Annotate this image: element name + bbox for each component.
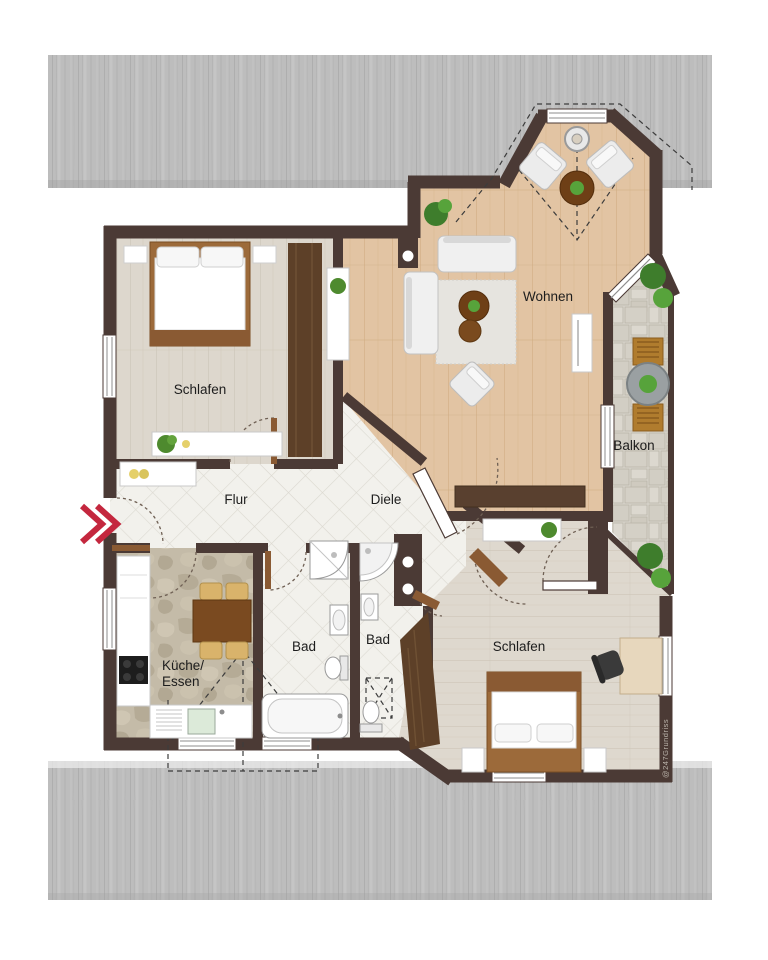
window <box>103 335 116 398</box>
plant-icon <box>640 263 666 289</box>
floorplan-page: Schlafen Wohnen Balkon Flur Diele Küche/… <box>0 0 768 960</box>
lowboard <box>455 486 585 507</box>
plant-icon <box>330 278 346 294</box>
label-bath2: Bad <box>366 632 390 647</box>
shower <box>310 541 348 579</box>
window <box>601 405 614 468</box>
plant-icon <box>570 181 584 195</box>
nightstand <box>124 246 147 263</box>
nightstand <box>462 748 484 772</box>
plant-icon <box>639 375 657 393</box>
wardrobe <box>288 243 322 457</box>
label-kitchen-line2: Essen <box>162 674 200 689</box>
label-bedroom2: Schlafen <box>493 639 546 654</box>
dining-table <box>193 600 251 642</box>
chair <box>200 583 222 600</box>
nightstand <box>253 246 276 263</box>
downlight-icon <box>403 251 414 262</box>
balcony-chair <box>633 338 663 365</box>
balcony-door-leaf <box>543 581 597 590</box>
plant-icon <box>637 543 663 569</box>
watermark-text: @247Grundriss <box>661 719 670 778</box>
balcony-chair <box>633 404 663 431</box>
window <box>178 737 236 750</box>
kitchen-counter-bottom <box>150 705 252 738</box>
window-bay <box>547 109 607 123</box>
chair <box>226 642 248 659</box>
tall-cabinet <box>327 268 349 360</box>
label-balcony: Balkon <box>613 438 654 453</box>
label-vestibule: Diele <box>371 492 402 507</box>
sideboard <box>152 432 282 456</box>
label-living: Wohnen <box>523 289 573 304</box>
label-hall: Flur <box>224 492 248 507</box>
sideboard <box>483 519 561 541</box>
kitchen-door-leaf <box>112 545 150 551</box>
window <box>103 588 116 650</box>
toilet <box>325 656 348 680</box>
label-bedroom1: Schlafen <box>174 382 227 397</box>
bath1-door-leaf <box>265 551 271 589</box>
double-bed <box>150 242 250 346</box>
sink <box>188 709 215 734</box>
double-bed <box>487 672 581 772</box>
dining-table-set <box>193 583 251 659</box>
chair <box>226 583 248 600</box>
window <box>262 737 312 750</box>
floorplan-drawing: Schlafen Wohnen Balkon Flur Diele Küche/… <box>0 0 768 960</box>
hall-furniture <box>120 462 196 486</box>
label-kitchen-line1: Küche/ <box>162 658 204 673</box>
cooktop <box>119 656 148 684</box>
washbasin <box>330 605 348 635</box>
label-bath1: Bad <box>292 639 316 654</box>
plant-icon <box>541 522 557 538</box>
bathtub <box>262 694 348 738</box>
plant-icon <box>468 300 480 312</box>
cabinet <box>572 314 592 372</box>
downlight-icon <box>403 584 414 595</box>
nightstand <box>584 748 606 772</box>
chair <box>200 642 222 659</box>
downlight-icon <box>403 557 414 568</box>
